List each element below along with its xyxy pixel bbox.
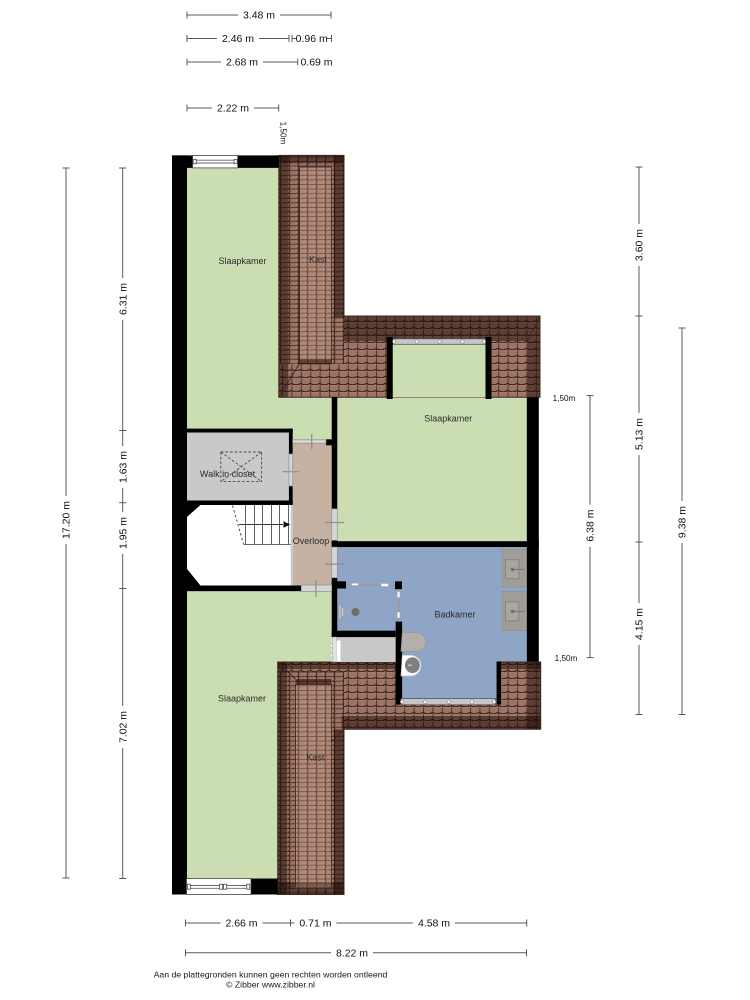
svg-text:3.60 m: 3.60 m [634,229,646,261]
svg-text:9.38 m: 9.38 m [677,506,689,538]
svg-text:0.71 m: 0.71 m [299,918,331,930]
svg-text:Slaapkamer: Slaapkamer [218,256,266,266]
svg-text:1,50m: 1,50m [553,394,576,403]
svg-text:2.68 m: 2.68 m [226,57,258,69]
svg-text:1,50m: 1,50m [555,654,578,663]
svg-text:Walk in closet: Walk in closet [200,469,256,479]
svg-text:17.20 m: 17.20 m [61,501,73,539]
svg-text:2.46 m: 2.46 m [222,33,254,45]
svg-text:2.66 m: 2.66 m [225,918,257,930]
svg-text:1.63 m: 1.63 m [117,451,129,483]
svg-text:5.13 m: 5.13 m [634,418,646,450]
svg-text:7.02 m: 7.02 m [117,711,129,743]
svg-text:Kast: Kast [306,753,325,763]
svg-text:2.22 m: 2.22 m [217,103,249,115]
svg-text:Badkamer: Badkamer [434,610,475,620]
svg-text:0.96 m: 0.96 m [296,33,328,45]
svg-text:Slaapkamer: Slaapkamer [424,413,472,423]
svg-text:4.58 m: 4.58 m [418,918,450,930]
svg-text:© Zibber www.zibber.nl: © Zibber www.zibber.nl [226,980,315,990]
svg-text:6.38 m: 6.38 m [585,509,597,541]
svg-text:Aan de plattegronden kunnen ge: Aan de plattegronden kunnen geen rechten… [154,970,388,980]
svg-text:8.22 m: 8.22 m [336,947,368,959]
svg-text:1,50m: 1,50m [279,122,288,145]
svg-text:4.15 m: 4.15 m [634,608,646,640]
svg-text:6.31 m: 6.31 m [117,283,129,315]
svg-text:3.48 m: 3.48 m [243,10,275,22]
svg-text:0.69 m: 0.69 m [300,57,332,69]
svg-text:Kast: Kast [309,255,328,265]
svg-text:1.95 m: 1.95 m [117,517,129,549]
svg-text:Slaapkamer: Slaapkamer [218,694,266,704]
svg-text:Overloop: Overloop [293,536,330,546]
